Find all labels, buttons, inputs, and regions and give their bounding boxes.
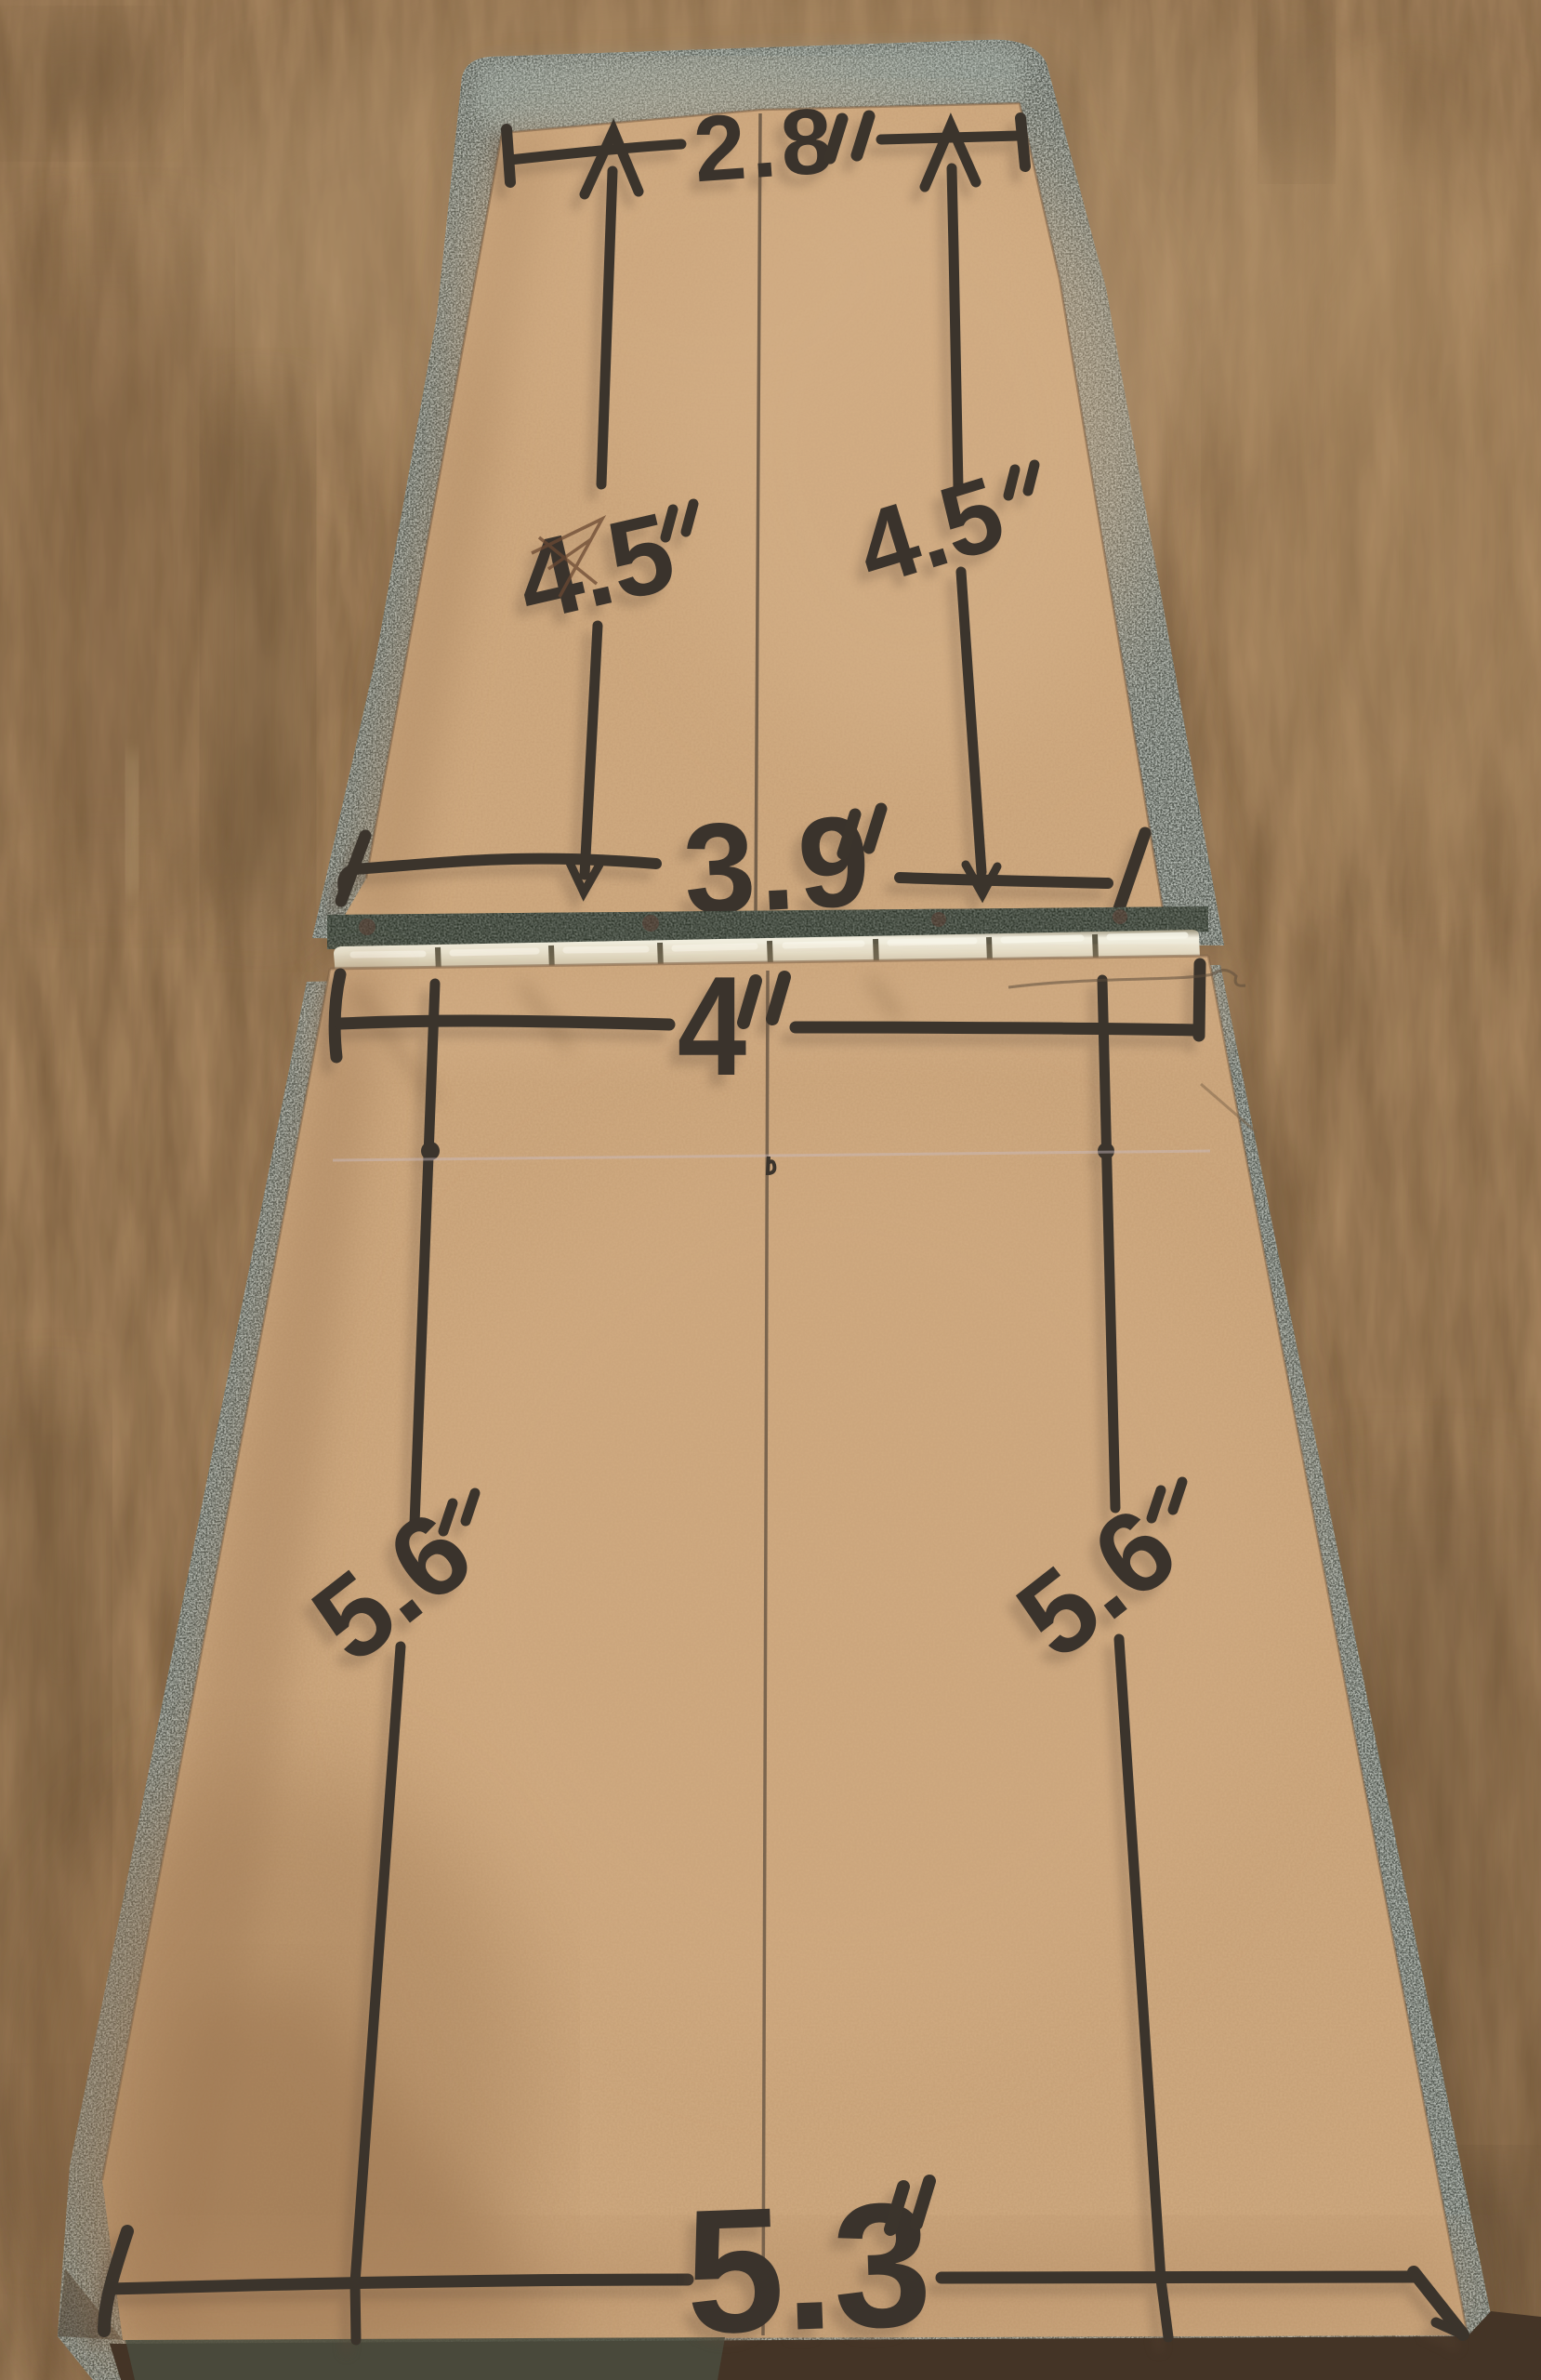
svg-text:2.8: 2.8 bbox=[691, 88, 840, 202]
svg-text:4: 4 bbox=[678, 947, 746, 1105]
